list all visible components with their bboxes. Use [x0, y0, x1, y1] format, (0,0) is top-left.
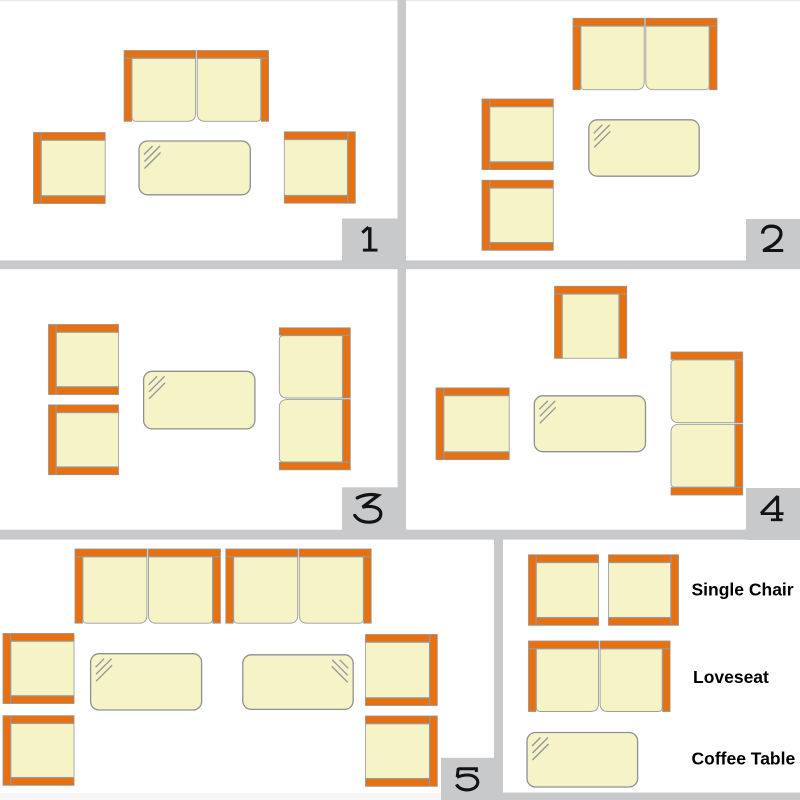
- svg-text:Loveseat: Loveseat: [693, 667, 769, 687]
- svg-text:Single Chair: Single Chair: [692, 580, 794, 600]
- svg-text:Coffee Table: Coffee Table: [692, 749, 796, 769]
